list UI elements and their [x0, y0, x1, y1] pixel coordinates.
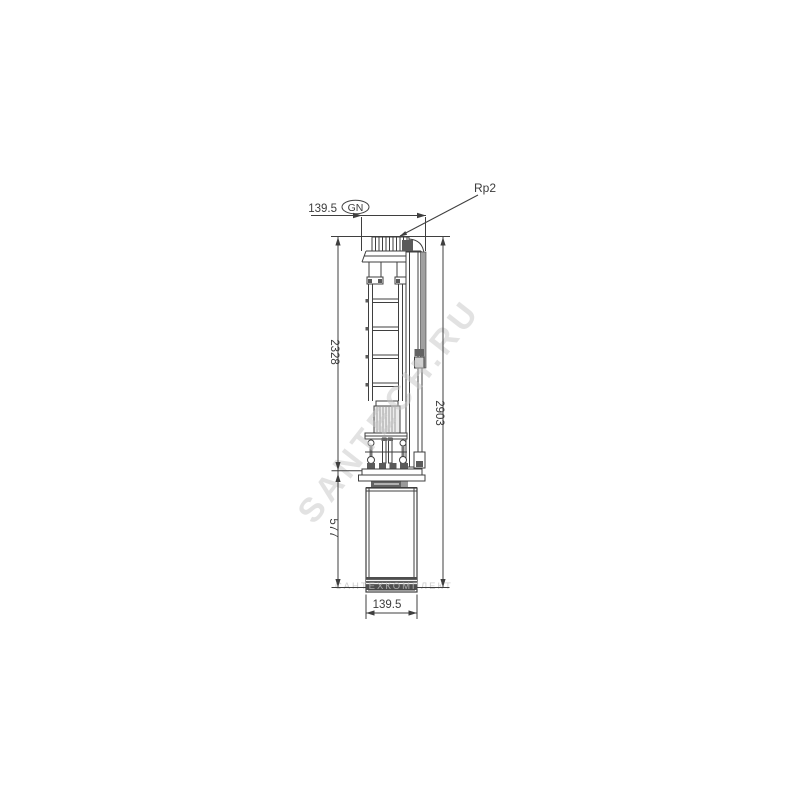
drawing-svg: SANTECH.RU САНТЕХКОМПЛЕКТ 139.5 GN Rp2: [0, 0, 800, 800]
arrowhead: [417, 213, 426, 218]
dimension-label-bottom-width: 139.5: [373, 599, 402, 611]
dimension-label-top-width: 139.5: [308, 203, 337, 215]
arrowhead: [335, 237, 340, 246]
clamp-legs: [367, 262, 411, 284]
dimension-label-motor-length: 577: [327, 518, 339, 537]
dimension-label-connection: Rp2: [474, 181, 496, 195]
dimension-label-total-length: 2903: [433, 400, 445, 426]
dimension-label-pump-length: 2328: [328, 339, 340, 365]
arrowhead: [440, 237, 445, 246]
watermark-secondary: САНТЕХКОМПЛЕКТ: [335, 581, 453, 592]
arrowhead: [409, 610, 418, 615]
motor-body: [366, 488, 417, 592]
cable-guard-top: [402, 240, 413, 251]
pump-dimension-drawing: SANTECH.RU САНТЕХКОМПЛЕКТ 139.5 GN Rp2: [0, 0, 800, 800]
suction-flange: [362, 469, 422, 475]
dimension-label-gn: GN: [348, 202, 364, 214]
motor-top-band: [366, 481, 417, 488]
arrowhead: [399, 231, 407, 237]
arrowhead: [366, 610, 375, 615]
